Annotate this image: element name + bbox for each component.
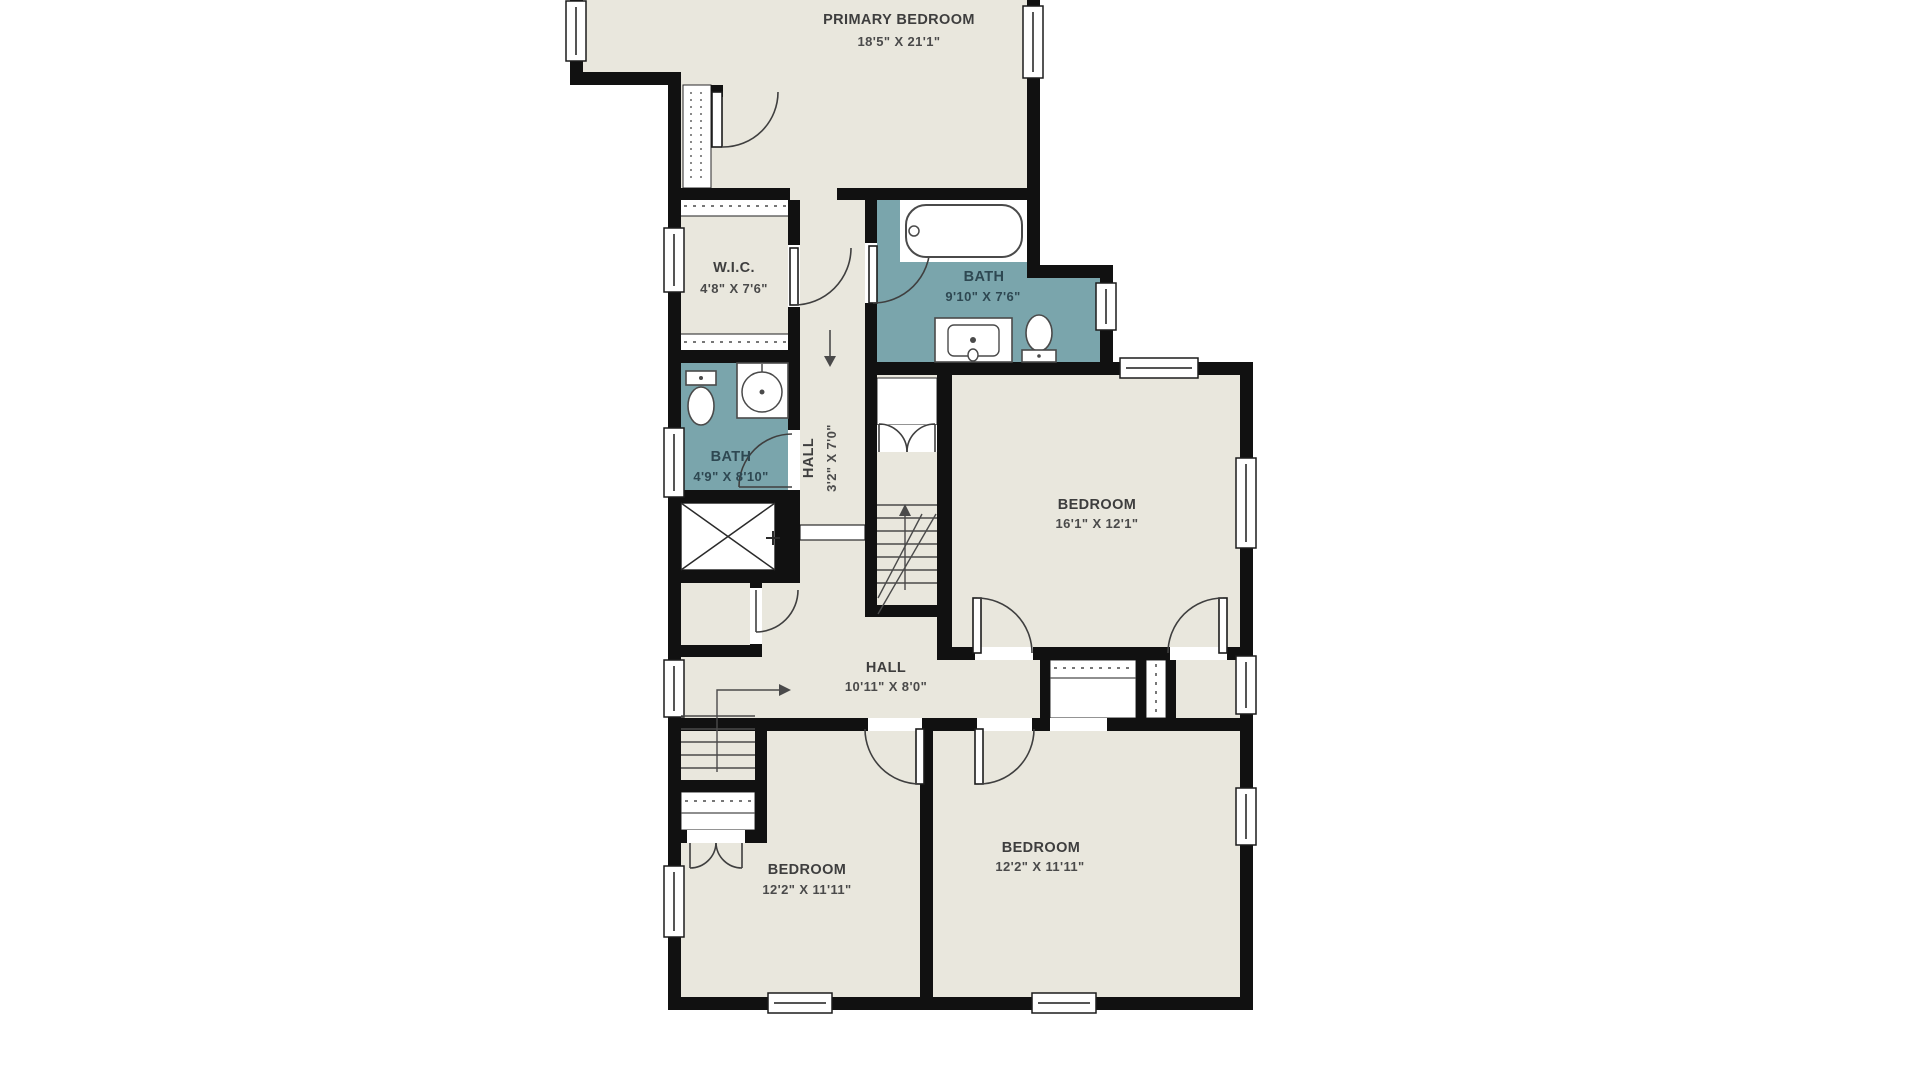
window [664,866,684,937]
linen-closet [681,792,755,830]
main-hall-label: HALL [866,660,906,676]
bedroom-southeast-dims: 12'2" X 11'11" [995,859,1084,874]
toilet-hall-bath [686,371,716,425]
window [1096,283,1116,330]
primary-bath-label: BATH [964,269,1005,285]
window [1023,6,1043,78]
window [1032,993,1096,1013]
vanity-sink-primary [935,318,1012,362]
bedroom-southwest-dims: 12'2" X 11'11" [762,882,851,897]
bathtub [906,205,1022,257]
bedroom-east-label: BEDROOM [1058,497,1137,513]
main-hall-dims: 10'11" X 8'0" [845,679,927,694]
wic-dims: 4'8" X 7'6" [700,281,768,296]
primary-bath-dims: 9'10" X 7'6" [945,289,1020,304]
attic-closet [877,378,937,425]
window [664,660,684,717]
primary-closet [683,85,711,188]
window [1120,358,1198,378]
wic-label: W.I.C. [713,260,755,276]
floor-plan-page: PRIMARY BEDROOM 18'5" X 21'1" W.I.C. 4'8… [0,0,1920,1080]
bedroom-east-dims: 16'1" X 12'1" [1056,516,1139,531]
bedroom-southwest-label: BEDROOM [768,862,847,878]
hall-bath-label: BATH [711,449,752,465]
bedroom-southeast-label: BEDROOM [1002,840,1081,856]
window [1236,458,1256,548]
window [1236,656,1256,714]
primary-bedroom-dims: 18'5" X 21'1" [858,34,941,49]
upper-hall-label: HALL [801,438,817,478]
primary-bedroom-label: PRIMARY BEDROOM [823,12,975,28]
window [664,228,684,292]
hall-cased-opening [800,525,865,540]
window [566,1,586,61]
floor-plan-drawing: PRIMARY BEDROOM 18'5" X 21'1" W.I.C. 4'8… [0,0,1920,1080]
window [1236,788,1256,845]
window [768,993,832,1013]
hall-bath-dims: 4'9" X 8'10" [693,469,768,484]
pedestal-sink-hall-bath [737,363,788,418]
window [664,428,684,497]
upper-hall-dims: 3'2" X 7'0" [824,424,839,492]
